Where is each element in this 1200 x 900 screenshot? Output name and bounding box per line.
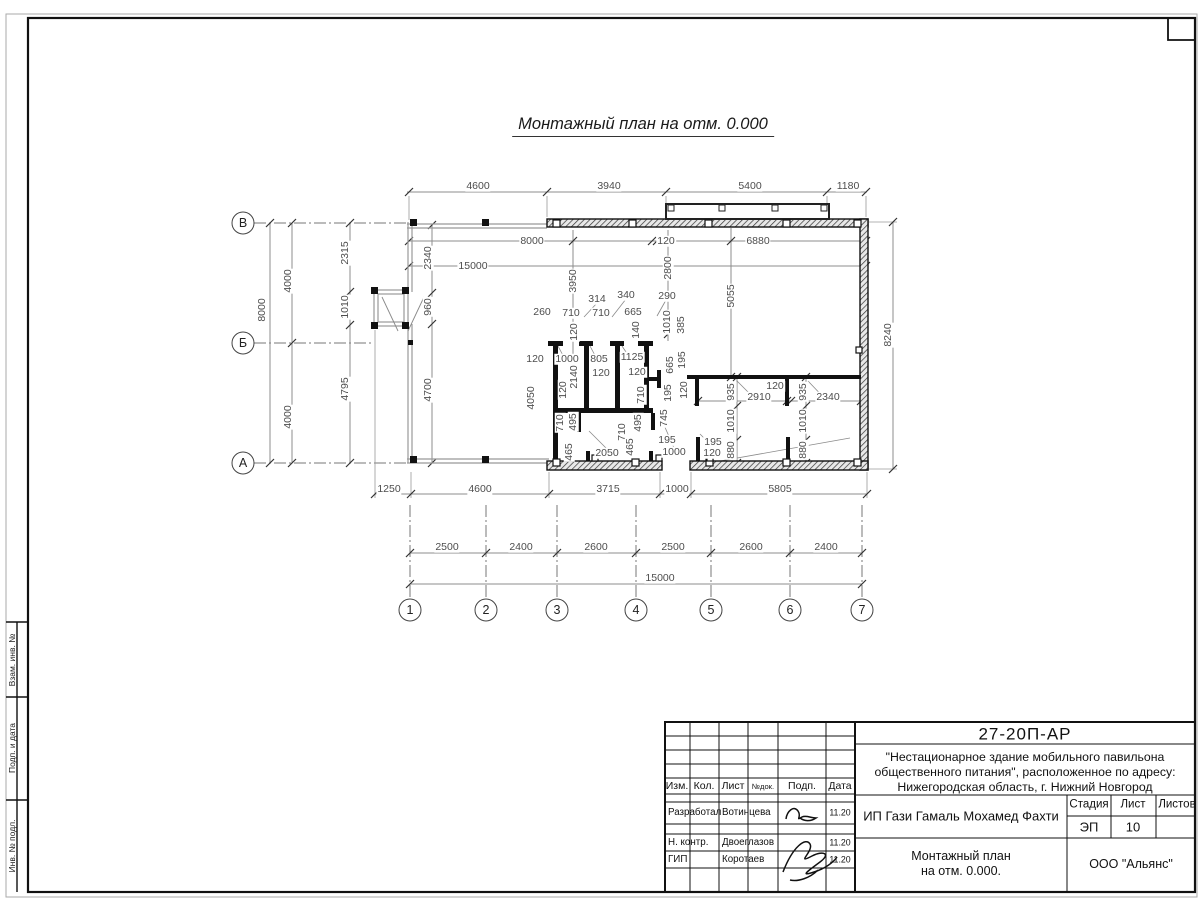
- project-name-line1: "Нестационарное здание мобильного павиль…: [886, 751, 1165, 763]
- row-role-developer: Разработал: [668, 808, 721, 818]
- sheet-label: Лист: [1121, 799, 1146, 811]
- client-name: ИП Гази Гамаль Мохамед Фахти: [863, 810, 1059, 823]
- sheets-label: Листов: [1158, 799, 1195, 811]
- drawing-title-line2: на отм. 0.000.: [921, 865, 1001, 878]
- stage-value: ЭП: [1080, 821, 1099, 834]
- row-role-gip: ГИП: [668, 855, 687, 865]
- plan-title: Монтажный план на отм. 0.000: [512, 115, 774, 137]
- col-podp: Подп.: [788, 781, 816, 792]
- stage-label: Стадия: [1069, 799, 1108, 811]
- col-data: Дата: [828, 781, 851, 792]
- row-name-developer: Вотинцева: [722, 808, 771, 818]
- row-name-gip: Коротаев: [722, 855, 764, 865]
- row-date-developer: 11.20: [829, 809, 850, 818]
- col-izm: Изм.: [666, 781, 689, 792]
- project-name-line3: Нижегородская область, г. Нижний Новгоро…: [897, 781, 1152, 793]
- project-name-line2: общественного питания", расположенное по…: [874, 766, 1175, 778]
- col-ndok: №док.: [752, 783, 774, 791]
- doc-number: 27-20П-АР: [978, 726, 1071, 743]
- drawing-title-line1: Монтажный план: [911, 850, 1011, 863]
- col-kol: Кол.: [694, 781, 715, 792]
- row-role-ncontrol: Н. контр.: [668, 838, 708, 848]
- col-list: Лист: [722, 781, 745, 792]
- row-name-ncontrol: Двоеглазов: [722, 838, 774, 848]
- row-date-gip: 11.20: [829, 856, 850, 865]
- sheet-number: 10: [1126, 821, 1140, 834]
- row-date-ncontrol: 11.20: [829, 839, 850, 848]
- drawing-sheet: { "title": "Монтажный план на отм. 0.000…: [0, 0, 1200, 900]
- company-name: ООО "Альянс": [1089, 858, 1173, 871]
